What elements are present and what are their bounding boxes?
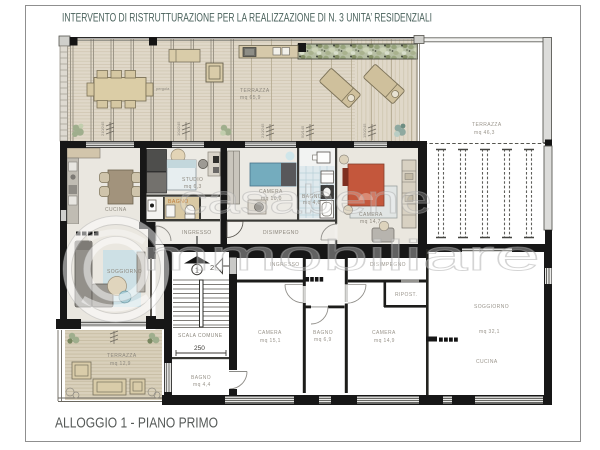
svg-text:BAGNO: BAGNO <box>191 375 211 381</box>
svg-text:210/245: 210/245 <box>100 121 105 136</box>
svg-text:mq 32,1: mq 32,1 <box>479 329 500 335</box>
svg-text:150/245: 150/245 <box>362 123 367 138</box>
svg-text:TERRAZZA: TERRAZZA <box>240 88 270 94</box>
svg-text:mq 14,9: mq 14,9 <box>374 338 395 344</box>
svg-text:mq 6,9: mq 6,9 <box>314 337 332 343</box>
svg-text:TERRAZZA: TERRAZZA <box>107 353 137 359</box>
svg-text:CAMERA: CAMERA <box>372 330 396 336</box>
svg-text:CAMERA: CAMERA <box>258 330 282 336</box>
svg-text:210/245: 210/245 <box>260 123 265 138</box>
svg-text:50/145: 50/145 <box>300 125 305 138</box>
svg-text:mq 65,9: mq 65,9 <box>240 95 261 101</box>
svg-text:casabene: casabene <box>178 178 432 222</box>
svg-text:mq 12,9: mq 12,9 <box>110 361 131 367</box>
svg-text:RIPOST.: RIPOST. <box>395 292 417 298</box>
svg-text:mq 46,3: mq 46,3 <box>474 130 495 136</box>
svg-text:ALLOGGIO 1 - PIANO PRIMO: ALLOGGIO 1 - PIANO PRIMO <box>55 415 218 432</box>
svg-text:mq 15,1: mq 15,1 <box>260 338 281 344</box>
svg-text:250: 250 <box>194 345 205 352</box>
svg-text:mmobiliare: mmobiliare <box>142 232 540 280</box>
svg-text:CUCINA: CUCINA <box>476 359 498 365</box>
svg-text:INTERVENTO DI RISTRUTTURAZIONE: INTERVENTO DI RISTRUTTURAZIONE PER LA RE… <box>62 13 432 25</box>
svg-text:SOGGIORNO: SOGGIORNO <box>474 304 509 310</box>
svg-text:mq 4,4: mq 4,4 <box>193 382 211 388</box>
svg-text:SCALA COMUNE: SCALA COMUNE <box>178 333 223 339</box>
svg-text:104/245: 104/245 <box>176 121 181 136</box>
svg-text:CUCINA: CUCINA <box>105 207 127 213</box>
svg-text:SOGGIORNO: SOGGIORNO <box>107 269 142 275</box>
svg-text:TERRAZZA: TERRAZZA <box>472 122 502 128</box>
svg-text:pergola: pergola <box>156 86 170 91</box>
svg-text:BAGNO: BAGNO <box>313 330 333 336</box>
